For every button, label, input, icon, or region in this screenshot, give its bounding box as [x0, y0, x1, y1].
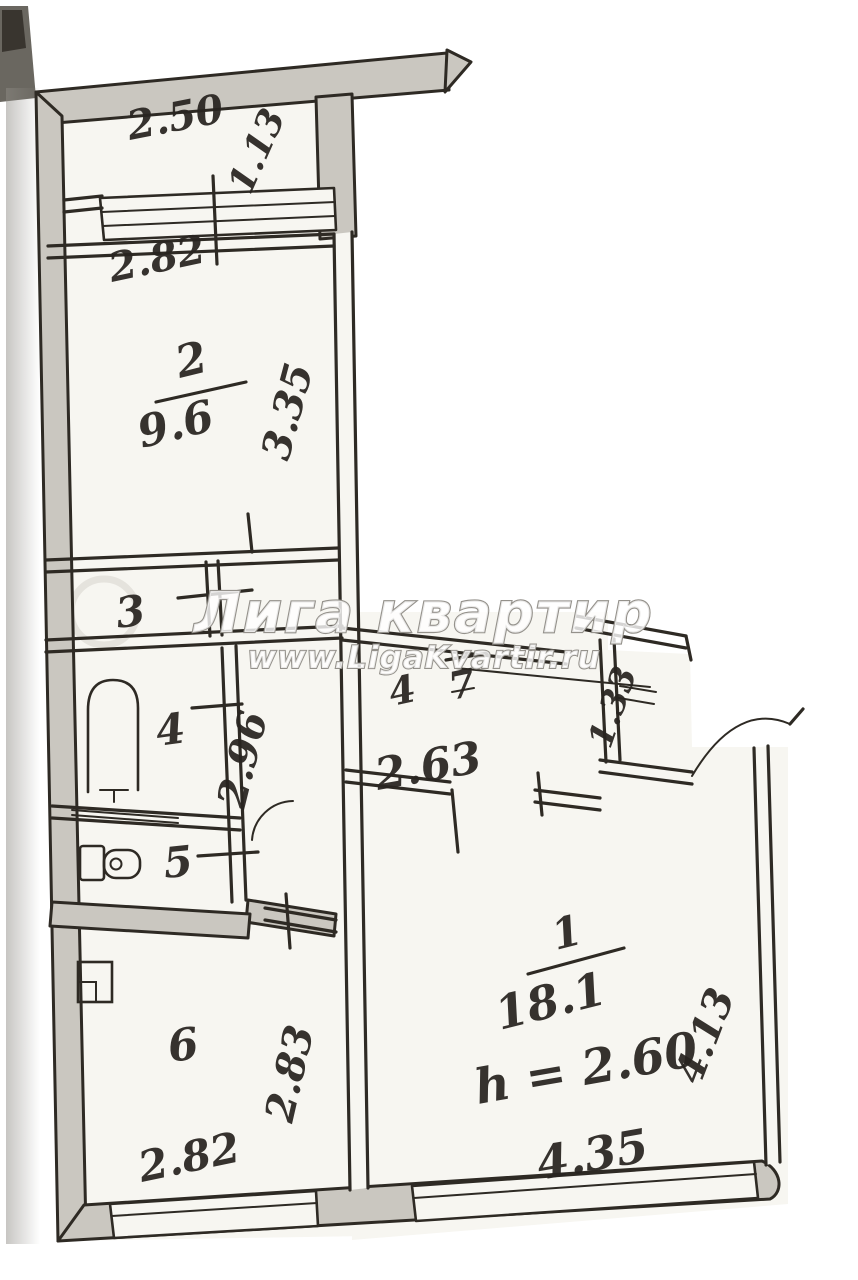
watermark-site: www.LigaKvartir.ru [247, 640, 600, 676]
watermark: Лига квартир www.LigaKvartir.ru [192, 581, 653, 676]
floor-plan: 2.50 1.13 2.82 2 9.6 3.35 3 4 2.96 5 6 2… [0, 0, 858, 1280]
room5-number-label: 5 [161, 836, 195, 888]
scanned-floor-plan-page: 2.50 1.13 2.82 2 9.6 3.35 3 4 2.96 5 6 2… [0, 0, 858, 1280]
watermark-brand: Лига квартир [192, 581, 653, 646]
